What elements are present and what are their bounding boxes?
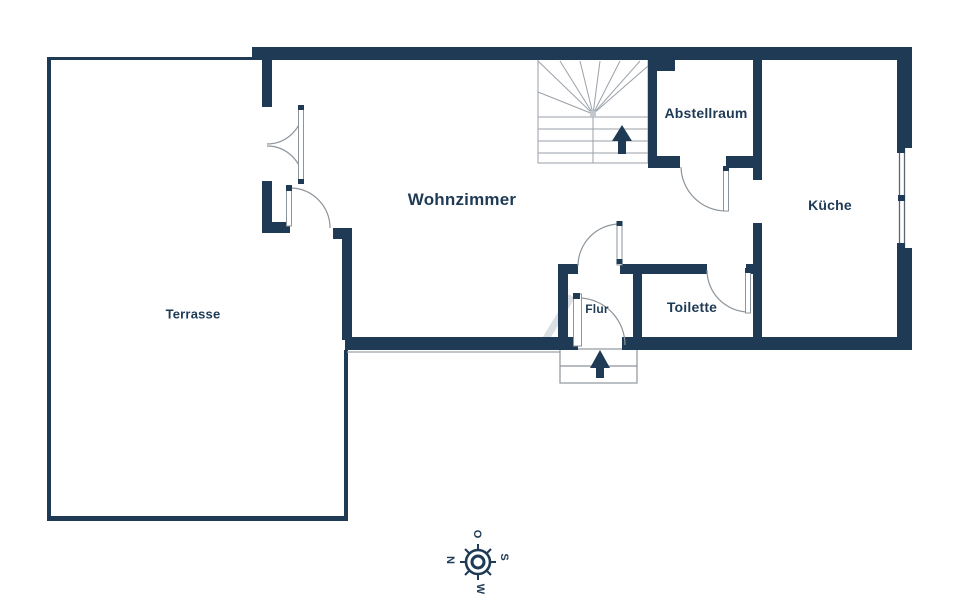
room-label-abstellraum: Abstellraum bbox=[664, 105, 747, 121]
floor-plan-drawing: O N S W bbox=[0, 0, 960, 605]
compass-south-label: S bbox=[498, 553, 510, 560]
floor-plan: O N S W Terrasse Wohnzimmer Abstellraum … bbox=[0, 0, 960, 605]
compass-west-label: W bbox=[474, 584, 486, 595]
compass-east-label: O bbox=[471, 530, 483, 539]
compass-north-label: N bbox=[444, 556, 456, 564]
abstellraum-door-icon bbox=[681, 166, 729, 211]
window-icon bbox=[897, 148, 912, 248]
room-label-toilette: Toilette bbox=[667, 299, 717, 315]
room-label-terrasse: Terrasse bbox=[166, 307, 221, 322]
room-label-flur: Flur bbox=[585, 302, 608, 316]
entrance-door-icon bbox=[573, 293, 625, 346]
room-label-kueche: Küche bbox=[808, 197, 852, 213]
room-label-wohnzimmer: Wohnzimmer bbox=[408, 190, 516, 210]
wohnzimmer-sw-door-icon bbox=[286, 185, 330, 228]
staircase bbox=[538, 59, 648, 163]
terrace-french-door-icon bbox=[267, 105, 304, 184]
flur-door-icon bbox=[578, 221, 623, 266]
compass-rose-icon: O N S W bbox=[444, 530, 510, 595]
